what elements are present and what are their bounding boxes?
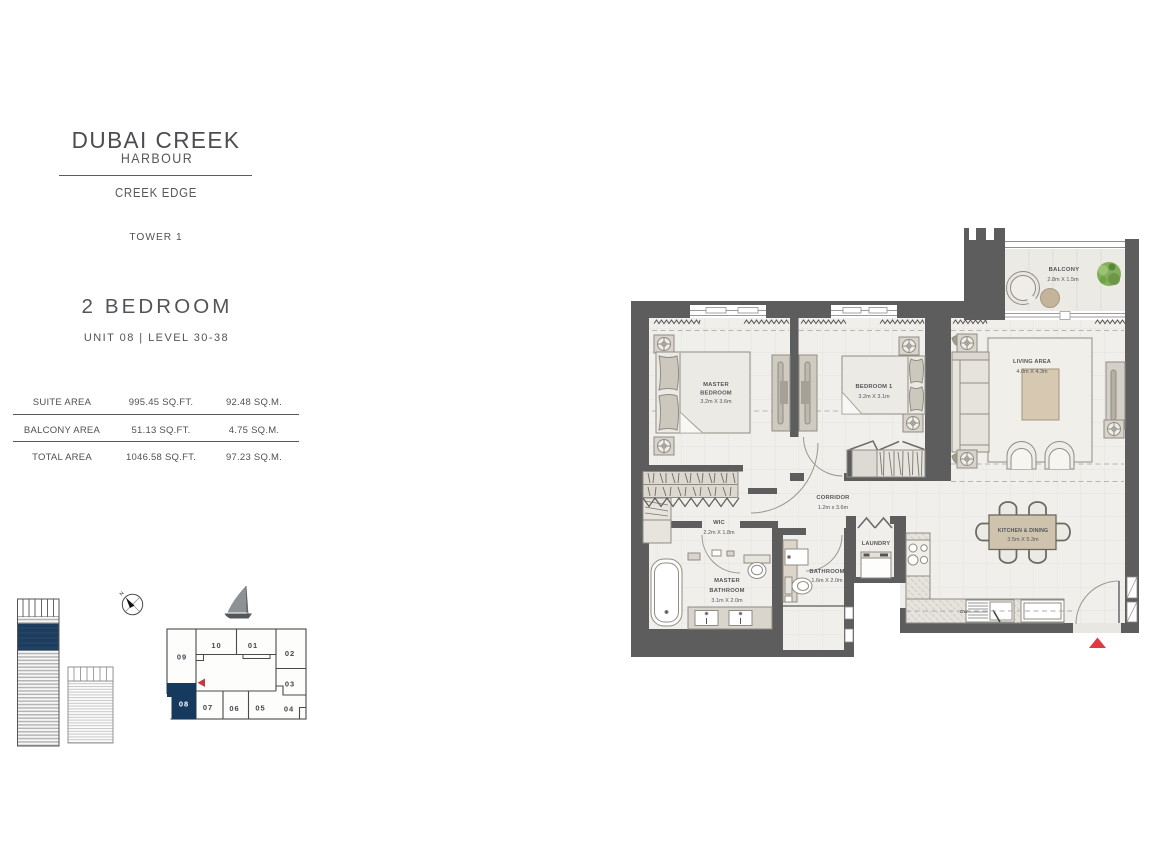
svg-text:2.8m X 1.5m: 2.8m X 1.5m: [1047, 277, 1079, 283]
svg-text:MASTER: MASTER: [714, 578, 740, 584]
svg-text:1.6m X 2.0m: 1.6m X 2.0m: [811, 578, 843, 584]
svg-text:BEDROOM: BEDROOM: [700, 391, 732, 397]
svg-text:06: 06: [229, 704, 239, 713]
svg-text:3.5m X 5.3m: 3.5m X 5.3m: [1007, 537, 1039, 543]
svg-text:4.0m X 4.3m: 4.0m X 4.3m: [1016, 369, 1048, 375]
svg-text:KITCHEN & DINING: KITCHEN & DINING: [998, 528, 1048, 534]
svg-text:BATHROOM: BATHROOM: [809, 569, 844, 575]
svg-text:3.2m X 3.6m: 3.2m X 3.6m: [700, 399, 732, 405]
svg-text:CORRIDOR: CORRIDOR: [816, 495, 850, 501]
svg-text:07: 07: [203, 703, 213, 712]
svg-text:BALCONY: BALCONY: [1049, 267, 1080, 273]
svg-text:LIVING AREA: LIVING AREA: [1013, 359, 1051, 365]
svg-text:03: 03: [285, 680, 295, 689]
svg-text:10: 10: [211, 641, 221, 650]
svg-text:BATHROOM: BATHROOM: [709, 588, 744, 594]
svg-text:09: 09: [177, 653, 187, 662]
svg-text:2.2m X 1.8m: 2.2m X 1.8m: [703, 530, 735, 536]
svg-text:1.2m x 3.6m: 1.2m x 3.6m: [818, 505, 849, 511]
svg-text:08: 08: [179, 700, 189, 709]
svg-text:02: 02: [285, 649, 295, 658]
svg-text:BEDROOM 1: BEDROOM 1: [856, 384, 893, 390]
svg-text:LAUNDRY: LAUNDRY: [862, 541, 891, 547]
svg-text:04: 04: [284, 705, 294, 714]
svg-text:WIC: WIC: [713, 520, 725, 526]
svg-text:05: 05: [255, 704, 265, 713]
svg-text:N: N: [119, 590, 126, 597]
svg-text:DW: DW: [960, 609, 968, 615]
svg-text:3.2m X 3.1m: 3.2m X 3.1m: [858, 394, 890, 400]
svg-text:MASTER: MASTER: [703, 382, 729, 388]
svg-text:01: 01: [248, 641, 258, 650]
svg-text:3.1m X 2.0m: 3.1m X 2.0m: [711, 598, 743, 604]
